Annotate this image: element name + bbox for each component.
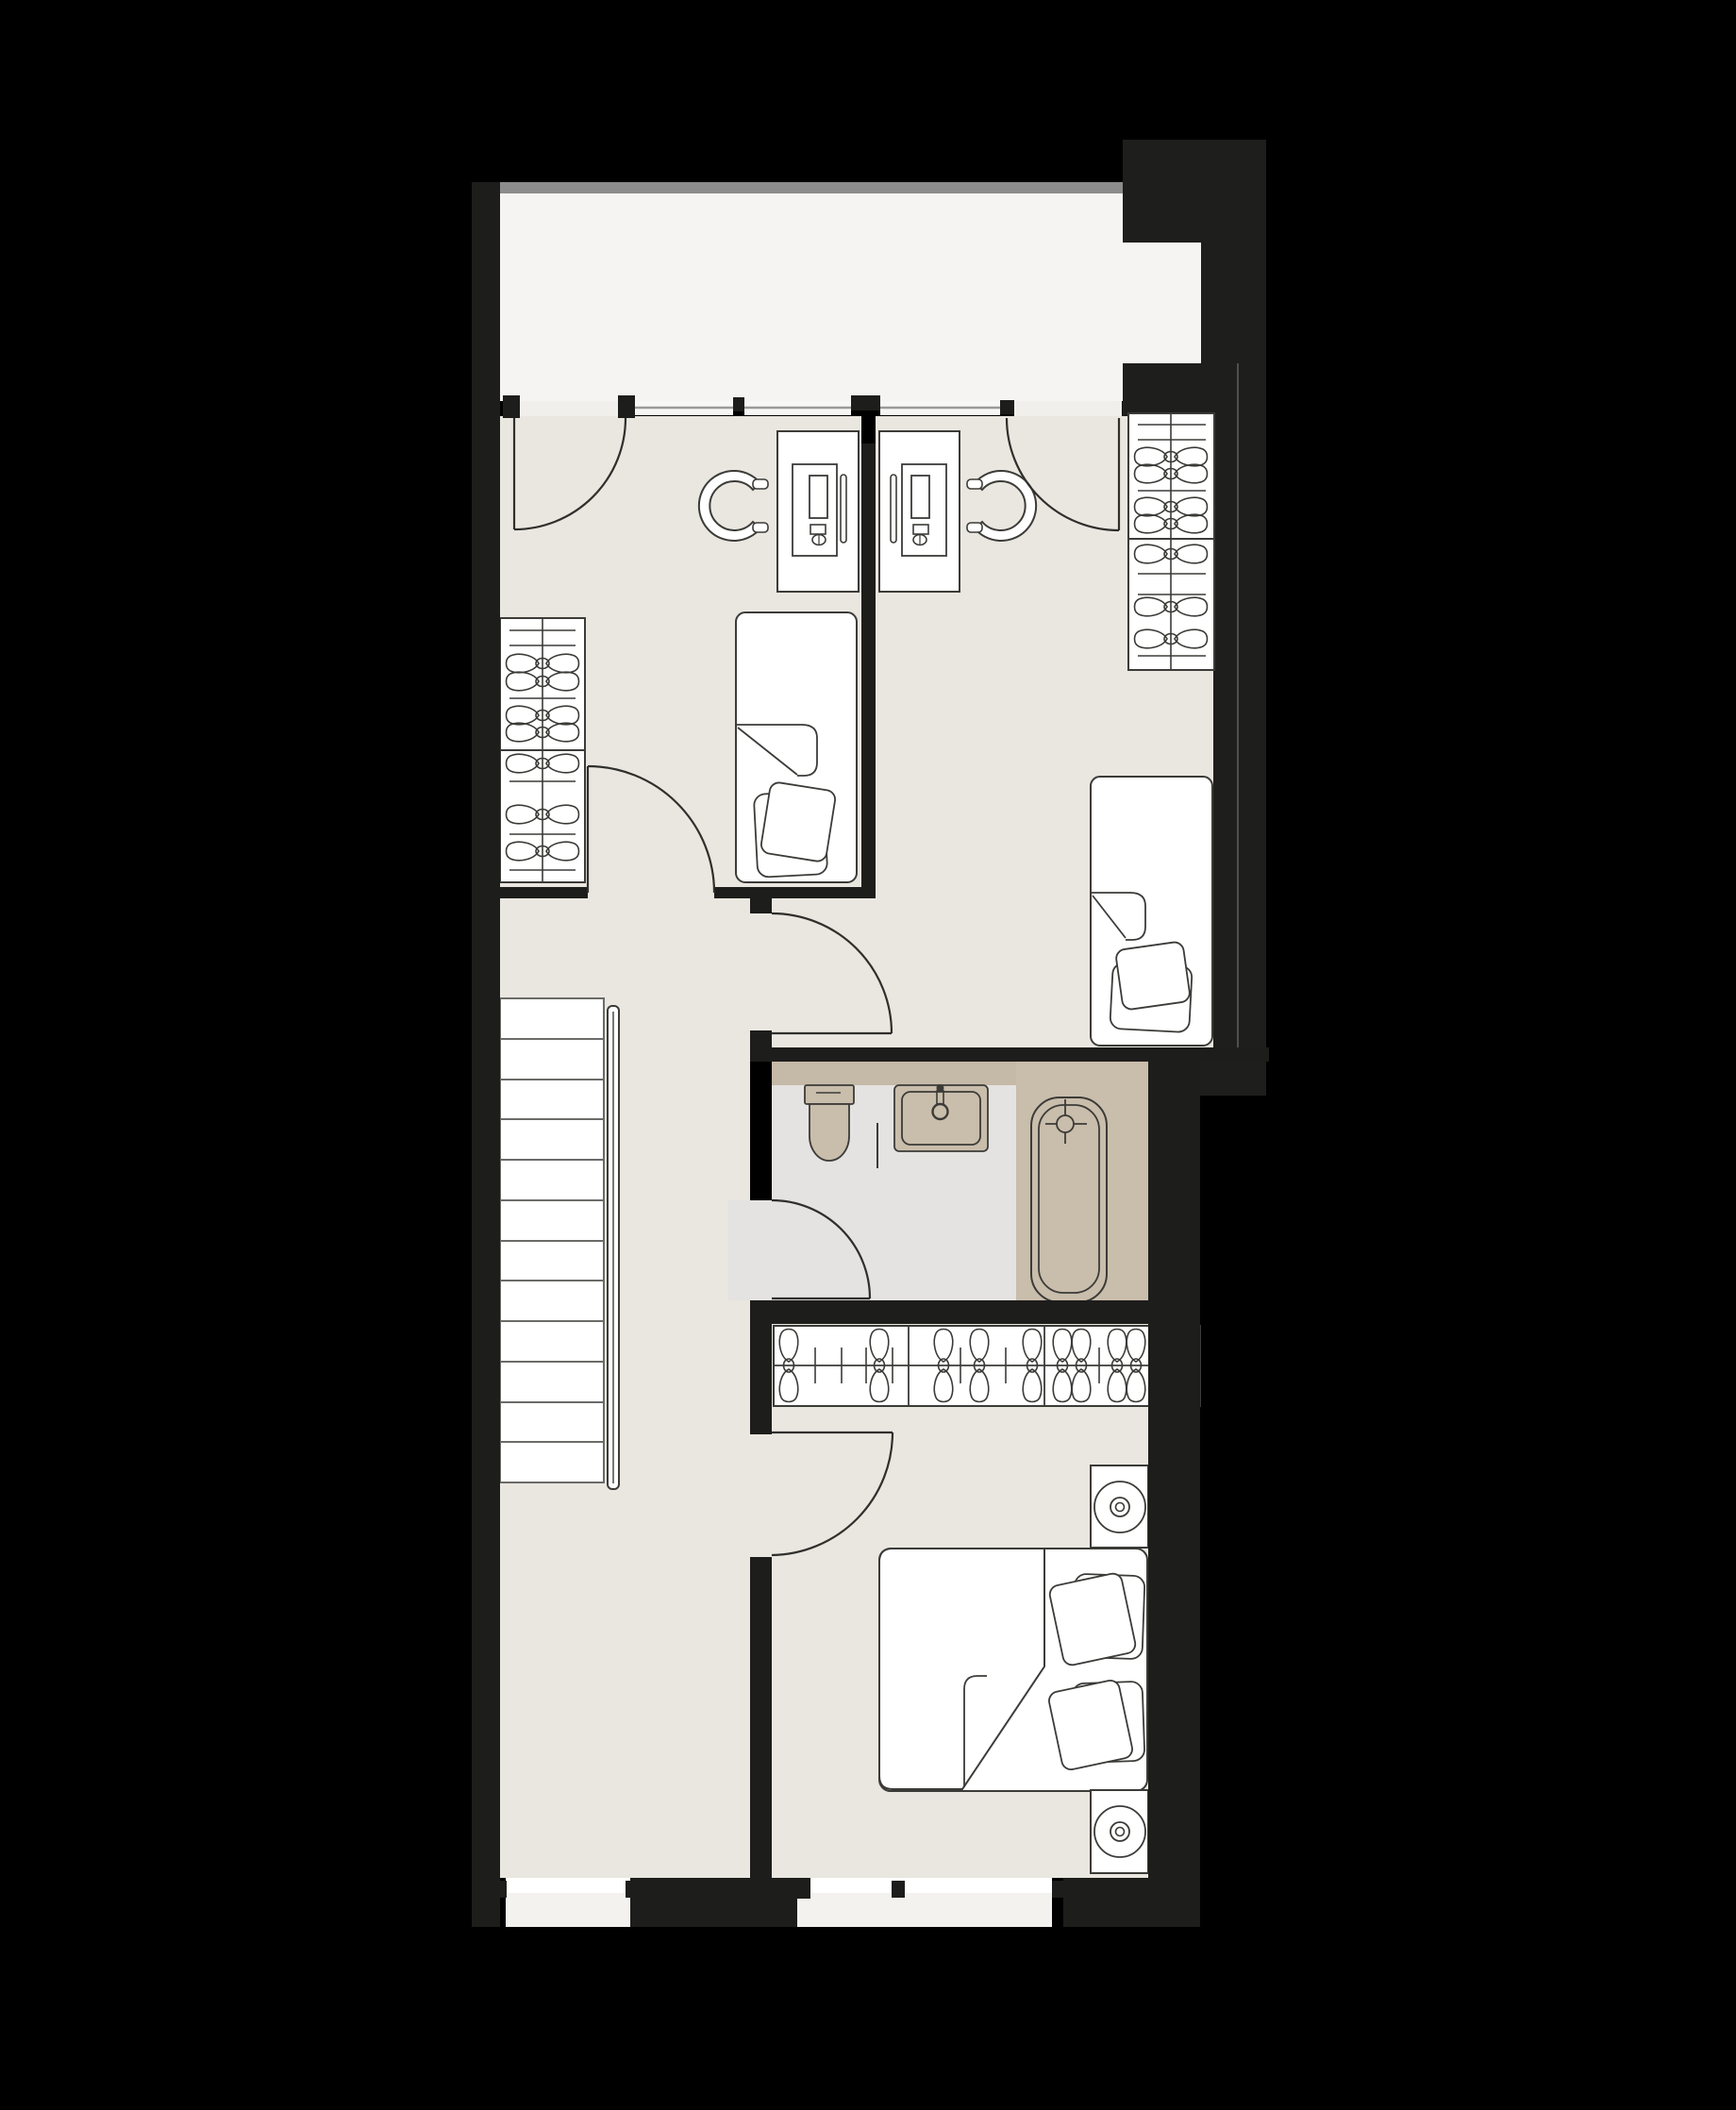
terrace-floor-extension bbox=[1123, 243, 1201, 363]
door-opening-floor bbox=[750, 1434, 772, 1557]
floor-plan-canvas bbox=[0, 0, 1736, 2110]
floor-plan-drawing bbox=[0, 0, 1736, 2110]
pillow bbox=[759, 781, 836, 862]
wall-west bbox=[472, 182, 500, 1927]
desk-left bbox=[777, 431, 859, 592]
window-hall-south bbox=[506, 1878, 630, 1927]
wall-bedroom-divider bbox=[861, 444, 876, 898]
terrace-door-threshold bbox=[514, 401, 618, 416]
washbasin bbox=[894, 1084, 988, 1151]
wall-bathroom-south bbox=[750, 1300, 1200, 1324]
wardrobe-left bbox=[500, 618, 585, 882]
terrace-door-threshold bbox=[1014, 401, 1122, 416]
terrace-glazing bbox=[635, 401, 1000, 415]
faucet-icon bbox=[1057, 1115, 1074, 1132]
wardrobe-right bbox=[1128, 413, 1214, 670]
toilet bbox=[805, 1085, 854, 1161]
pillow bbox=[1047, 1679, 1134, 1771]
double-bed bbox=[879, 1549, 1147, 1791]
staircase bbox=[500, 998, 619, 1489]
window-bedroom-south bbox=[797, 1878, 1052, 1927]
single-bed-right bbox=[1091, 777, 1212, 1046]
bedroom-right-entry-floor bbox=[772, 898, 876, 1047]
nightstand-top bbox=[1091, 1465, 1148, 1548]
desk-right bbox=[879, 431, 960, 592]
closet-rail bbox=[774, 1326, 1200, 1406]
single-bed-left bbox=[736, 612, 857, 882]
pillow bbox=[1115, 941, 1191, 1010]
pillow bbox=[1048, 1572, 1137, 1666]
wall-east bbox=[1148, 1047, 1200, 1927]
terrace-parapet bbox=[500, 182, 1123, 193]
bathroom-door-threshold bbox=[728, 1200, 772, 1300]
nightstand-bottom bbox=[1091, 1790, 1148, 1873]
terrace-floor bbox=[500, 193, 1123, 401]
door-opening-floor bbox=[750, 913, 772, 1033]
